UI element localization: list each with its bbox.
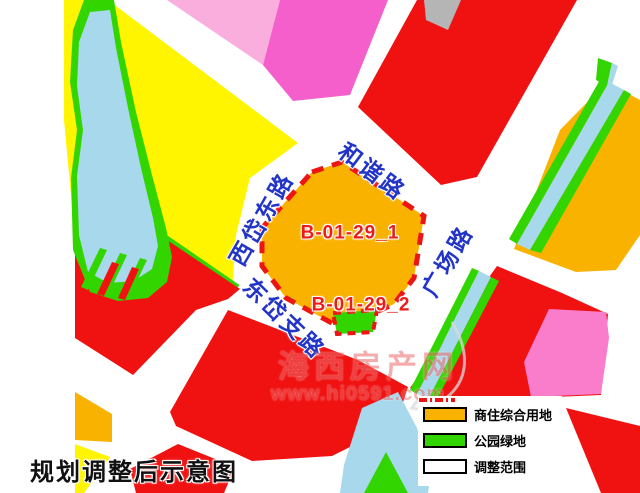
- dash-dot-line-sample: [418, 396, 456, 404]
- legend-row-commercial-residential: 商住综合用地: [423, 405, 562, 424]
- legend-label-park-green: 公园绿地: [474, 431, 526, 450]
- legend: 商住综合用地 公园绿地 调整范围: [418, 396, 562, 486]
- parcel-orange-southwest: [75, 392, 112, 442]
- legend-swatch-dash-line: [423, 459, 467, 474]
- page-title: 规划调整后示意图: [30, 461, 238, 485]
- legend-label-adjustment-scope: 调整范围: [474, 457, 526, 476]
- legend-swatch-green: [423, 433, 467, 448]
- parcel-red-north: [358, 0, 577, 185]
- legend-swatch-orange: [423, 407, 467, 422]
- parcel-lightpink-north: [167, 0, 280, 65]
- legend-row-park-green: 公园绿地: [423, 431, 562, 450]
- legend-row-adjustment-scope: 调整范围: [423, 457, 562, 476]
- parcel-red-corner-southeast: [566, 408, 640, 493]
- parcel-label-b-01-29-1: B-01-29_1: [301, 224, 400, 243]
- watermark-site-name: 海西房产网: [278, 352, 458, 383]
- legend-label-commercial-residential: 商住综合用地: [474, 405, 552, 424]
- parcel-label-b-01-29-2: B-01-29_2: [312, 296, 411, 315]
- planning-map: 和谐路 西岱东路 东岱支路 广场路 B-01-29_1 B-01-29_2 海西…: [0, 0, 640, 493]
- parcel-magenta-north: [263, 0, 388, 101]
